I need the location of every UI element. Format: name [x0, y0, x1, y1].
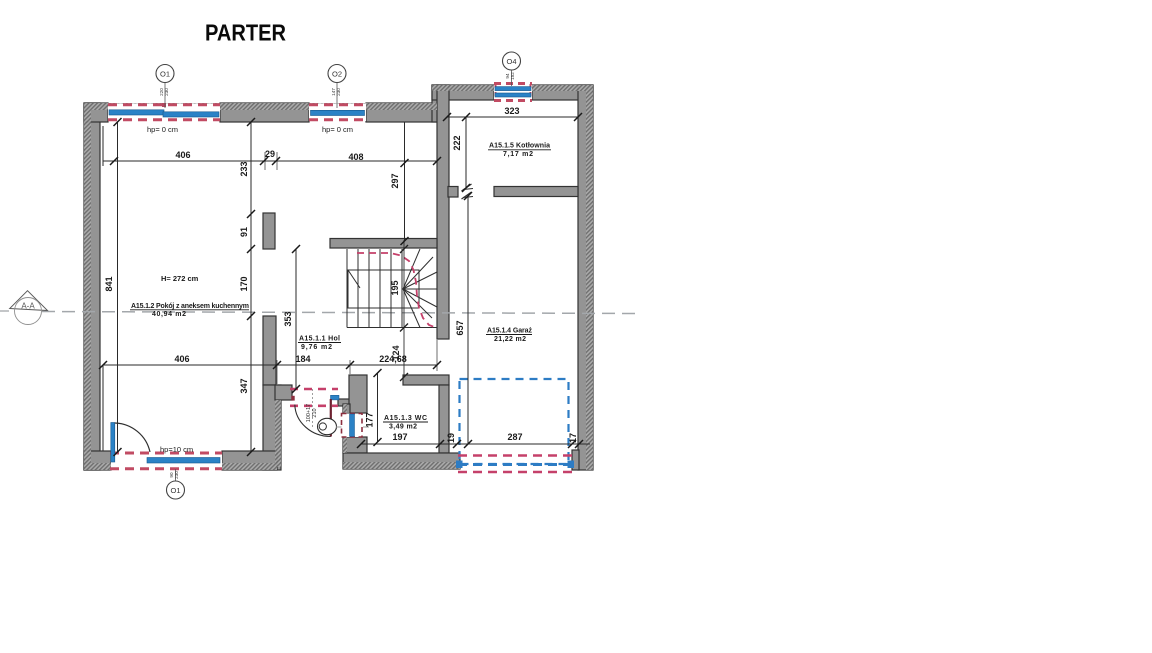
svg-text:233: 233 [239, 161, 249, 176]
svg-text:A15.1.2 Pokój z aneksem kuchen: A15.1.2 Pokój z aneksem kuchennym [131, 303, 249, 310]
svg-text:O1: O1 [160, 70, 170, 79]
svg-text:323: 323 [504, 106, 519, 116]
svg-text:O2: O2 [332, 70, 342, 79]
svg-text:297: 297 [390, 173, 400, 188]
svg-text:3,49 m2: 3,49 m2 [389, 424, 417, 431]
svg-text:177: 177 [365, 412, 375, 427]
svg-text:A-A: A-A [21, 302, 35, 311]
svg-text:17: 17 [568, 433, 578, 443]
svg-text:408: 408 [348, 152, 363, 162]
svg-text:195: 195 [390, 280, 400, 295]
svg-text:184: 184 [295, 354, 310, 364]
svg-text:19: 19 [446, 433, 456, 443]
svg-text:hp=10 cm: hp=10 cm [160, 445, 193, 454]
svg-text:210: 210 [312, 408, 318, 417]
svg-text:O1: O1 [170, 486, 180, 495]
svg-text:A15.1.4 Garaż: A15.1.4 Garaż [487, 328, 533, 335]
svg-text:A15.1.1 Hol: A15.1.1 Hol [299, 336, 340, 343]
svg-text:657: 657 [455, 320, 465, 335]
svg-text:406: 406 [174, 354, 189, 364]
svg-text:A15.1.5 Kotłownia: A15.1.5 Kotłownia [489, 143, 550, 150]
svg-text:287: 287 [507, 432, 522, 442]
svg-text:230: 230 [336, 88, 341, 96]
svg-text:152: 152 [510, 72, 515, 80]
svg-text:406: 406 [175, 150, 190, 160]
svg-text:230: 230 [174, 471, 179, 479]
svg-text:A15.1.3 WC: A15.1.3 WC [384, 415, 427, 422]
svg-text:224,68: 224,68 [379, 354, 407, 364]
svg-text:197: 197 [392, 432, 407, 442]
svg-text:O4: O4 [506, 57, 516, 66]
svg-text:230: 230 [164, 88, 169, 96]
svg-text:21,22 m2: 21,22 m2 [494, 336, 526, 343]
svg-text:9,76 m2: 9,76 m2 [301, 344, 332, 351]
svg-text:222: 222 [452, 135, 462, 150]
svg-text:347: 347 [239, 378, 249, 393]
svg-text:PARTER: PARTER [205, 20, 286, 46]
svg-text:H= 272 cm: H= 272 cm [161, 274, 199, 283]
svg-text:841: 841 [104, 276, 114, 291]
svg-text:91: 91 [239, 227, 249, 237]
svg-text:hp= 0 cm: hp= 0 cm [322, 125, 353, 134]
svg-text:170: 170 [239, 276, 249, 291]
svg-text:353: 353 [283, 311, 293, 326]
svg-text:29: 29 [265, 149, 275, 159]
svg-text:40,94 m2: 40,94 m2 [152, 311, 186, 318]
svg-text:hp= 0 cm: hp= 0 cm [147, 125, 178, 134]
svg-text:7,17 m2: 7,17 m2 [503, 151, 533, 158]
